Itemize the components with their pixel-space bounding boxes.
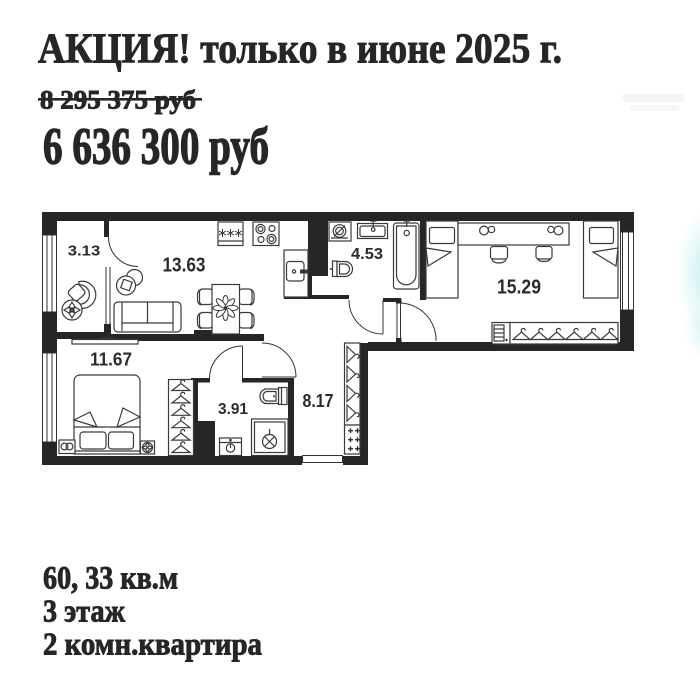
svg-text:АКЦИЯ! только в июне 2025 г.: АКЦИЯ! только в июне 2025 г.	[38, 27, 562, 73]
svg-text:6 636 300 руб: 6 636 300 руб	[43, 119, 269, 176]
svg-text:3 этаж: 3 этаж	[43, 593, 126, 629]
svg-text:2 комн.квартира: 2 комн.квартира	[43, 626, 262, 662]
svg-text:60, 33 кв.м: 60, 33 кв.м	[43, 561, 178, 597]
svg-text:11.67: 11.67	[90, 350, 132, 370]
svg-text:8.17: 8.17	[303, 391, 334, 411]
svg-text:3.13: 3.13	[68, 244, 101, 260]
svg-text:13.63: 13.63	[163, 255, 206, 277]
svg-text:4.53: 4.53	[351, 246, 383, 263]
svg-text:3.91: 3.91	[218, 401, 248, 418]
svg-text:15.29: 15.29	[497, 277, 541, 299]
